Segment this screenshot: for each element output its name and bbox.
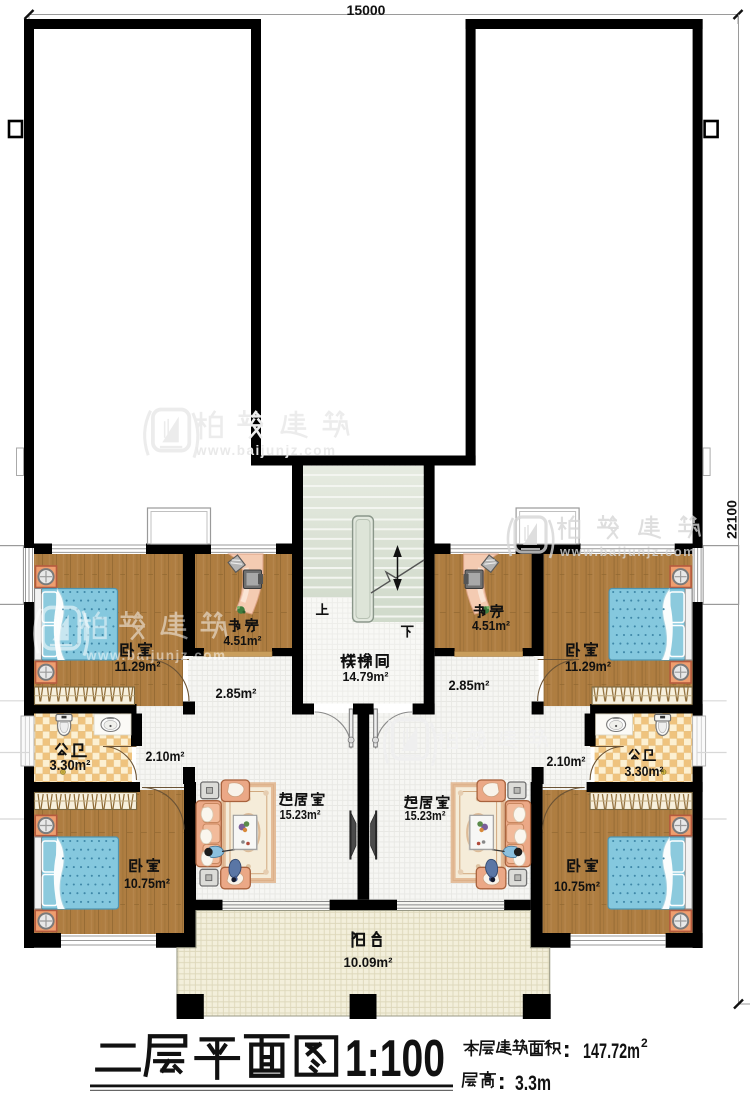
svg-text:www.baijunjz.com: www.baijunjz.com [195, 443, 337, 458]
svg-text:2.85m²: 2.85m² [449, 678, 490, 693]
svg-text:15.23m²: 15.23m² [405, 809, 446, 823]
svg-text:11.29m²: 11.29m² [115, 659, 161, 674]
svg-text:4.51m²: 4.51m² [472, 618, 511, 633]
svg-text:2: 2 [641, 1036, 648, 1050]
svg-text:147.72m: 147.72m [583, 1040, 640, 1063]
svg-text:2.10m²: 2.10m² [547, 754, 586, 769]
svg-text:22100: 22100 [724, 500, 740, 539]
svg-text:3.30m²: 3.30m² [50, 758, 91, 774]
svg-text:www.baijunjz.com: www.baijunjz.com [559, 544, 696, 559]
svg-text:11.29m²: 11.29m² [565, 659, 611, 674]
svg-text:4.51m²: 4.51m² [224, 633, 263, 648]
svg-text:10.09m²: 10.09m² [344, 955, 393, 970]
svg-text:1:100: 1:100 [345, 1030, 445, 1088]
svg-text:2.85m²: 2.85m² [216, 686, 257, 701]
svg-text:3.30m²: 3.30m² [625, 763, 664, 779]
svg-text:3.3m: 3.3m [515, 1072, 551, 1095]
svg-text:15.23m²: 15.23m² [280, 808, 321, 822]
svg-text:10.75m²: 10.75m² [554, 879, 600, 894]
svg-text:15000: 15000 [347, 2, 386, 18]
svg-text:2.10m²: 2.10m² [146, 749, 185, 764]
svg-text:14.79m²: 14.79m² [343, 669, 390, 684]
svg-text:10.75m²: 10.75m² [124, 876, 170, 891]
